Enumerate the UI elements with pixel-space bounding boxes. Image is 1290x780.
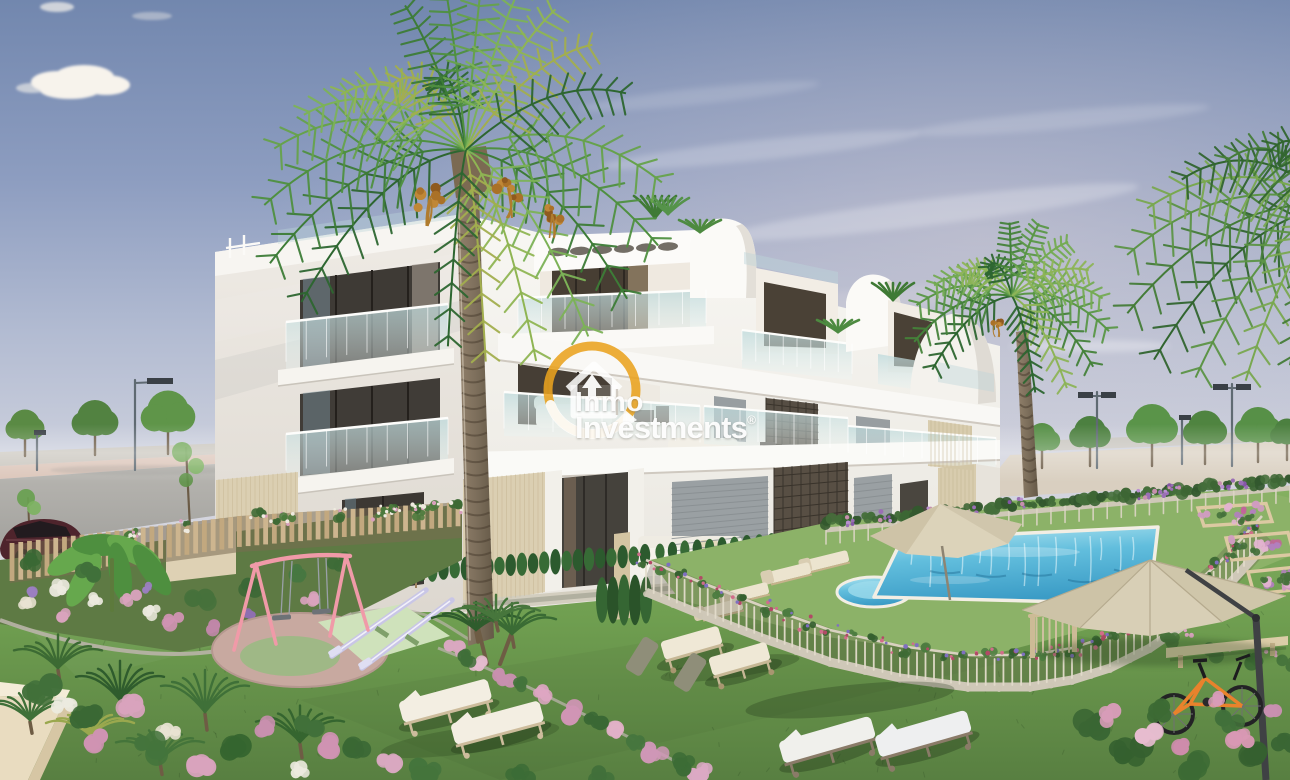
scene <box>0 0 1290 780</box>
render-image: Inmo Investments® <box>0 0 1290 780</box>
